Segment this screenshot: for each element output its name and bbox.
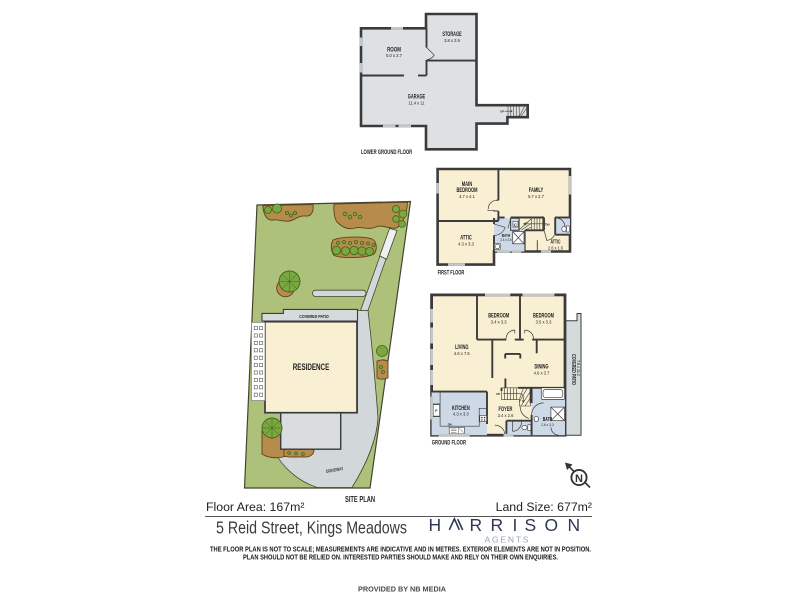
svg-text:PROVIDED BY NB MEDIA: PROVIDED BY NB MEDIA (358, 585, 446, 594)
svg-text:2.6 x 3.3: 2.6 x 3.3 (541, 422, 554, 427)
svg-text:DN: DN (546, 223, 550, 227)
svg-text:S: S (525, 515, 537, 535)
svg-text:AGENTS: AGENTS (485, 535, 531, 545)
svg-text:I: I (513, 515, 518, 535)
svg-text:5 Reid Street, Kings Meadows: 5 Reid Street, Kings Meadows (216, 518, 407, 538)
svg-text:3.4 x 2.6: 3.4 x 2.6 (498, 413, 514, 418)
svg-text:H: H (429, 515, 442, 535)
svg-text:N: N (575, 473, 583, 485)
svg-text:5.0 x 3.7: 5.0 x 3.7 (386, 53, 402, 58)
svg-text:5.7 x 2.7: 5.7 x 2.7 (528, 194, 544, 199)
svg-text:R: R (470, 515, 483, 535)
svg-text:4.3 x 3.3: 4.3 x 3.3 (453, 412, 469, 417)
svg-text:11.4 x 11: 11.4 x 11 (409, 100, 426, 105)
svg-text:GROUND FLOOR: GROUND FLOOR (432, 440, 467, 447)
svg-text:COVERED PATIO: COVERED PATIO (299, 314, 329, 319)
svg-text:SITE PLAN: SITE PLAN (345, 495, 375, 504)
svg-text:PLAN SHOULD NOT BE RELIED ON.: PLAN SHOULD NOT BE RELIED ON. INTERESTED… (243, 552, 558, 561)
svg-text:LOWER GROUND FLOOR: LOWER GROUND FLOOR (361, 149, 413, 156)
svg-text:3.5 x 3.3: 3.5 x 3.3 (536, 319, 552, 324)
svg-text:4.3 x 3.3: 4.3 x 3.3 (458, 241, 474, 246)
svg-text:7.6 x 11.2: 7.6 x 11.2 (576, 360, 581, 377)
svg-text:R: R (491, 515, 504, 535)
svg-text:O: O (545, 515, 559, 535)
svg-text:3.4 x 3.3: 3.4 x 3.3 (491, 319, 507, 324)
svg-text:FIRST FLOOR: FIRST FLOOR (438, 270, 465, 277)
svg-text:N: N (568, 515, 581, 535)
svg-text:4.7 x 4.1: 4.7 x 4.1 (459, 194, 475, 199)
svg-text:3.8 x 3.6: 3.8 x 3.6 (444, 38, 460, 43)
svg-text:UP: UP (500, 109, 504, 113)
svg-text:2.6 x 1.6: 2.6 x 1.6 (548, 245, 563, 250)
svg-text:4.6 x 7.5: 4.6 x 7.5 (454, 351, 470, 356)
svg-text:Land Size: 677m²: Land Size: 677m² (496, 500, 592, 514)
svg-text:Floor Area: 167m²: Floor Area: 167m² (206, 500, 304, 514)
svg-text:2.4 x 2.6: 2.4 x 2.6 (500, 237, 512, 242)
svg-text:4.6 x 3.7: 4.6 x 3.7 (534, 370, 550, 375)
svg-text:RESIDENCE: RESIDENCE (293, 362, 330, 372)
svg-text:COVERED PATIO: COVERED PATIO (570, 354, 576, 385)
svg-text:UP: UP (496, 392, 500, 396)
